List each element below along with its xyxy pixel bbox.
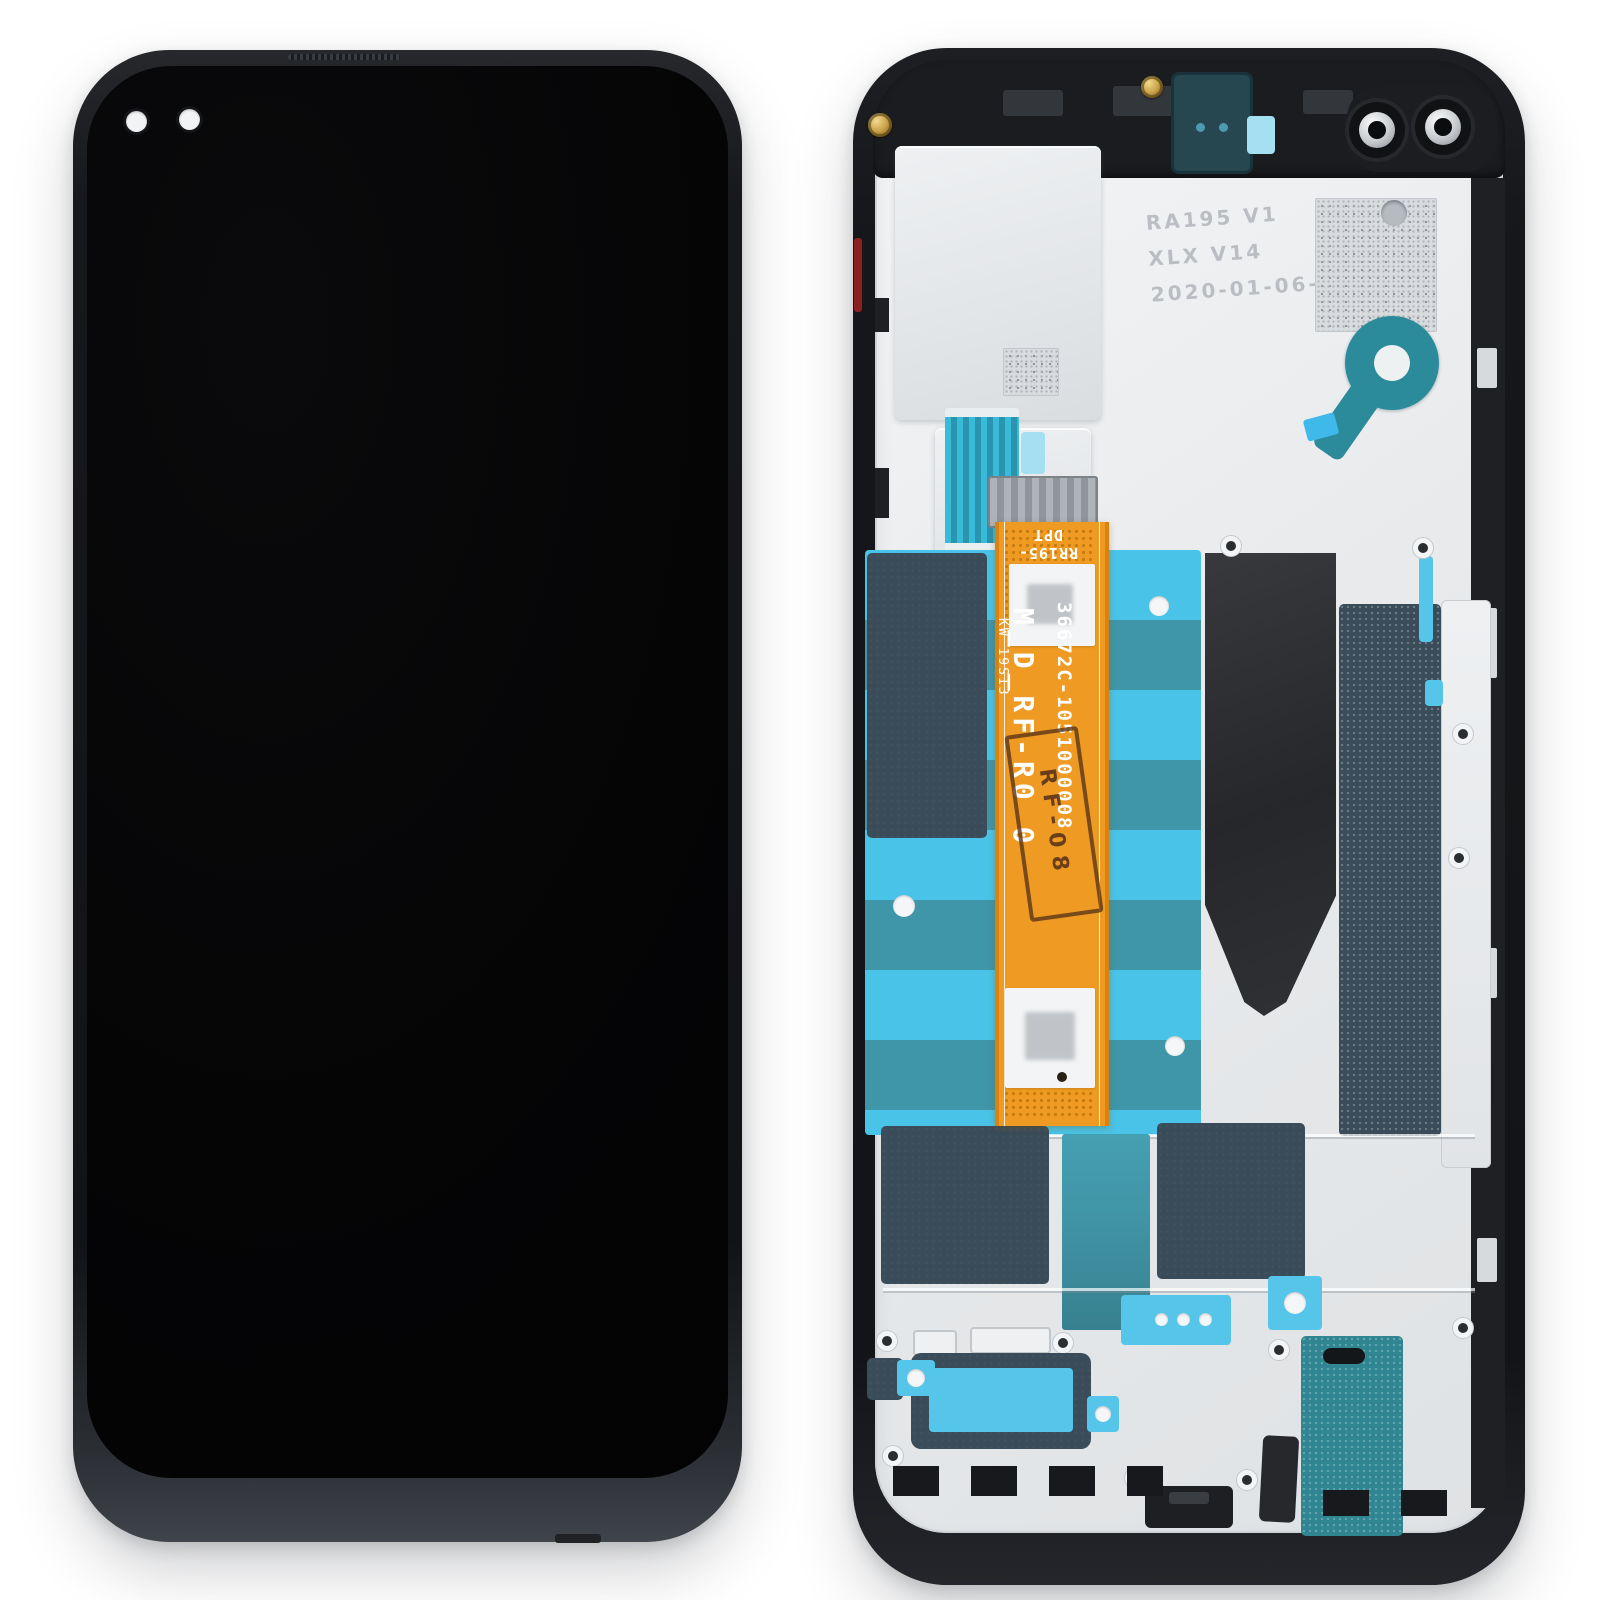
phone-front-view bbox=[73, 50, 742, 1542]
keyhole-sticker-hole bbox=[1374, 345, 1410, 381]
punch-hole-camera-icon bbox=[126, 111, 147, 132]
camera-seat-hole-icon bbox=[1219, 123, 1228, 132]
flex-connector-code: RR195-DPT bbox=[1003, 526, 1093, 562]
product-photo-scene: RA195 V1 XLX V14 2020-01-06-8-55 bbox=[0, 0, 1600, 1600]
speaker-adhesive bbox=[929, 1368, 1073, 1432]
flex-board-connector bbox=[988, 476, 1098, 528]
camera-lens-icon bbox=[1415, 99, 1471, 155]
power-button-red bbox=[854, 238, 862, 312]
screw-hole-icon bbox=[1237, 1470, 1257, 1490]
left-rail-cutout bbox=[875, 468, 889, 518]
frame-cutout bbox=[1303, 90, 1353, 114]
adhesive-hole bbox=[1155, 1313, 1168, 1326]
adhesive-hole bbox=[1199, 1313, 1212, 1326]
adhesive-patch bbox=[1087, 1396, 1119, 1432]
antenna-slot bbox=[1323, 1348, 1365, 1364]
rail-cutout bbox=[1477, 1238, 1497, 1282]
lens-pupil bbox=[1368, 121, 1386, 139]
adhesive-patch bbox=[1121, 1295, 1231, 1345]
adhesive-hole bbox=[1165, 1036, 1185, 1056]
screw-hole-icon bbox=[1453, 1318, 1473, 1338]
glitter-foil-patch bbox=[1003, 348, 1059, 396]
usb-slot-icon bbox=[1169, 1492, 1209, 1504]
screw-hole-icon bbox=[1413, 538, 1433, 558]
punch-hole-camera-icon bbox=[179, 109, 200, 130]
adhesive-sliver bbox=[1419, 556, 1433, 642]
screw-hole-icon bbox=[883, 1446, 903, 1466]
camera-seat-hole-icon bbox=[1196, 123, 1205, 132]
adhesive-hole bbox=[1149, 596, 1169, 616]
adhesive-hole bbox=[893, 895, 915, 917]
gold-screw-icon bbox=[1141, 76, 1163, 98]
adhesive-sliver bbox=[1425, 680, 1443, 706]
frame-cutout bbox=[1003, 90, 1063, 116]
screw-hole-icon bbox=[877, 1331, 897, 1351]
screw-hole-icon bbox=[1453, 724, 1473, 744]
vent-hole bbox=[1381, 200, 1407, 226]
port-side-bracket bbox=[1259, 1435, 1299, 1523]
frame-recess bbox=[970, 1327, 1051, 1354]
rail-cutout bbox=[1477, 348, 1497, 388]
glitter-foil-patch bbox=[1315, 198, 1437, 332]
frame-ridge bbox=[883, 1288, 1475, 1291]
label-print-smudge bbox=[1025, 1012, 1075, 1060]
adhesive-hole bbox=[1095, 1406, 1111, 1422]
adhesive-pull-tab bbox=[1021, 432, 1045, 474]
camera-lens-icon bbox=[1349, 102, 1405, 158]
qc-ink-stamp: RF-08 bbox=[1004, 726, 1103, 922]
adhesive-hole bbox=[1284, 1292, 1306, 1314]
adhesive-pull-tab bbox=[1247, 116, 1275, 154]
flex-alignment-dot bbox=[1057, 1072, 1067, 1082]
lens-pupil bbox=[1434, 118, 1452, 136]
screw-hole-icon bbox=[1269, 1340, 1289, 1360]
screw-hole-icon bbox=[1221, 536, 1241, 556]
insulator-film bbox=[867, 553, 987, 838]
earpiece-grille-icon bbox=[288, 54, 400, 60]
insulator-film bbox=[881, 1126, 1049, 1284]
side-silver-strip bbox=[1441, 600, 1491, 1168]
flex-trace-line bbox=[1099, 522, 1100, 1126]
bottom-mic-notch bbox=[555, 1534, 601, 1543]
screw-hole-icon bbox=[1053, 1333, 1073, 1353]
frame-castellation bbox=[893, 1466, 1163, 1496]
phone-back-view: RA195 V1 XLX V14 2020-01-06-8-55 bbox=[853, 48, 1525, 1585]
gold-screw-icon bbox=[868, 113, 892, 137]
front-camera-bracket bbox=[1171, 72, 1253, 174]
flex-label bbox=[1005, 988, 1095, 1088]
lcd-screen bbox=[87, 66, 728, 1478]
frame-castellation bbox=[1323, 1490, 1473, 1516]
emi-shield-plate bbox=[895, 146, 1101, 420]
flex-marking-small: KW 19S13 bbox=[995, 618, 1010, 697]
adhesive-patch bbox=[1268, 1276, 1322, 1330]
speaker-box bbox=[911, 1353, 1091, 1449]
main-flex-cable: 36672C-1051000008 M_D_RF-R0 0 KW 19S13 R… bbox=[995, 522, 1109, 1126]
screw-hole-icon bbox=[1449, 848, 1469, 868]
left-rail-cutout bbox=[875, 298, 889, 332]
adhesive-hole bbox=[1177, 1313, 1190, 1326]
adhesive-hole bbox=[907, 1369, 925, 1387]
insulator-film bbox=[1157, 1123, 1305, 1279]
adhesive-patch bbox=[897, 1360, 935, 1396]
qc-stamp-text: RF-08 bbox=[1034, 767, 1074, 880]
